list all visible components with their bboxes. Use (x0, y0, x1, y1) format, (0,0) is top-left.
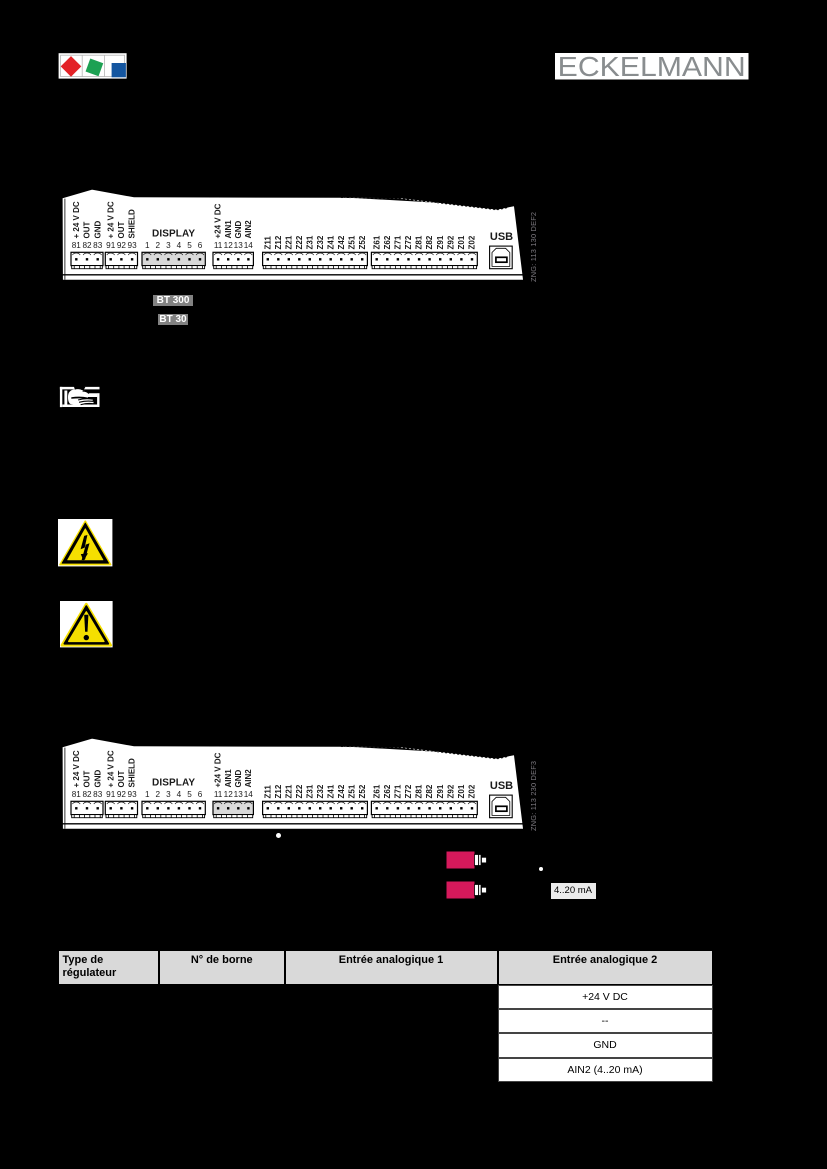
svg-text:Z82: Z82 (425, 235, 434, 249)
svg-text:3: 3 (166, 790, 171, 799)
svg-text:Z92: Z92 (446, 235, 455, 249)
svg-text:SHIELD: SHIELD (128, 209, 137, 239)
svg-text:5: 5 (187, 241, 192, 250)
svg-text:Z51: Z51 (347, 784, 356, 798)
svg-text:Z31: Z31 (305, 235, 314, 249)
svg-text:Z71: Z71 (394, 235, 403, 249)
svg-text:91: 91 (106, 241, 116, 250)
svg-text:Z32: Z32 (316, 784, 325, 798)
svg-text:+24 V DC: +24 V DC (214, 203, 223, 238)
svg-text:Z52: Z52 (358, 235, 367, 249)
svg-text:6: 6 (198, 790, 203, 799)
svg-text:11: 11 (214, 241, 223, 250)
svg-text:14: 14 (244, 241, 254, 250)
svg-text:+ 24 V DC: + 24 V DC (72, 201, 81, 238)
svg-text:Z92: Z92 (446, 784, 455, 798)
svg-text:Z81: Z81 (415, 235, 424, 249)
svg-text:OUT: OUT (117, 222, 126, 239)
svg-text:Z01: Z01 (457, 784, 466, 798)
svg-text:AIN2: AIN2 (244, 769, 253, 788)
svg-text:Z32: Z32 (316, 235, 325, 249)
svg-text:Z91: Z91 (436, 784, 445, 798)
svg-text:Z61: Z61 (372, 235, 381, 249)
svg-text:Z01: Z01 (457, 235, 466, 249)
svg-text:93: 93 (128, 241, 138, 250)
svg-text:Z91: Z91 (436, 235, 445, 249)
svg-text:AIN1: AIN1 (224, 769, 233, 788)
svg-text:2: 2 (156, 241, 161, 250)
svg-text:91: 91 (106, 790, 116, 799)
svg-text:Z12: Z12 (274, 235, 283, 249)
svg-text:14: 14 (244, 790, 254, 799)
svg-text:Z81: Z81 (415, 784, 424, 798)
svg-text:4: 4 (177, 241, 182, 250)
svg-text:81: 81 (72, 241, 82, 250)
svg-text:92: 92 (117, 790, 127, 799)
svg-text:GND: GND (234, 770, 243, 788)
svg-text:Z12: Z12 (274, 784, 283, 798)
svg-text:81: 81 (72, 790, 82, 799)
svg-text:4: 4 (177, 790, 182, 799)
svg-text:+24 V DC: +24 V DC (214, 752, 223, 787)
svg-text:DISPLAY: DISPLAY (152, 229, 195, 240)
svg-text:93: 93 (128, 790, 138, 799)
svg-text:82: 82 (82, 790, 92, 799)
svg-text:GND: GND (234, 221, 243, 239)
svg-text:SHIELD: SHIELD (128, 758, 137, 788)
svg-text:Z22: Z22 (295, 235, 304, 249)
svg-text:Z71: Z71 (394, 784, 403, 798)
svg-text:83: 83 (93, 790, 103, 799)
svg-text:ZNG: 113 230 DEF3: ZNG: 113 230 DEF3 (529, 761, 538, 831)
svg-text:ECKELMANN: ECKELMANN (558, 53, 746, 80)
svg-text:Z11: Z11 (263, 236, 272, 250)
svg-text:Z62: Z62 (383, 784, 392, 798)
svg-text:11: 11 (214, 790, 223, 799)
svg-text:Z51: Z51 (347, 235, 356, 249)
svg-text:1: 1 (145, 241, 150, 250)
svg-text:6: 6 (198, 241, 203, 250)
svg-text:Z62: Z62 (383, 235, 392, 249)
svg-text:GND: GND (93, 221, 102, 239)
svg-text:92: 92 (117, 241, 127, 250)
svg-text:82: 82 (82, 241, 92, 250)
svg-text:USB: USB (490, 780, 513, 792)
svg-text:Z61: Z61 (372, 784, 381, 798)
svg-text:Z42: Z42 (337, 784, 346, 798)
svg-text:OUT: OUT (117, 771, 126, 788)
svg-text:Z22: Z22 (295, 784, 304, 798)
svg-text:ZNG: 113 130 DEF2: ZNG: 113 130 DEF2 (529, 212, 538, 282)
svg-text:+ 24 V DC: + 24 V DC (106, 201, 115, 238)
svg-text:GND: GND (93, 770, 102, 788)
svg-text:3: 3 (166, 241, 171, 250)
svg-text:5: 5 (187, 790, 192, 799)
svg-text:Z41: Z41 (326, 235, 335, 249)
svg-text:USB: USB (490, 231, 513, 243)
svg-text:Z02: Z02 (468, 784, 477, 798)
svg-text:Z72: Z72 (404, 784, 413, 798)
svg-text:AIN1: AIN1 (224, 220, 233, 239)
svg-text:+ 24 V DC: + 24 V DC (106, 750, 115, 787)
svg-text:Z52: Z52 (358, 784, 367, 798)
svg-text:+ 24 V DC: + 24 V DC (72, 750, 81, 787)
svg-text:OUT: OUT (83, 771, 92, 788)
svg-text:Z11: Z11 (263, 785, 272, 799)
svg-text:Z21: Z21 (284, 784, 293, 798)
svg-text:Z41: Z41 (326, 784, 335, 798)
svg-text:DISPLAY: DISPLAY (152, 778, 195, 789)
svg-text:12: 12 (224, 241, 234, 250)
svg-text:Z42: Z42 (337, 235, 346, 249)
svg-text:Z02: Z02 (468, 235, 477, 249)
svg-text:Z31: Z31 (305, 784, 314, 798)
svg-text:AIN2: AIN2 (244, 220, 253, 239)
svg-text:12: 12 (224, 790, 234, 799)
svg-text:1: 1 (145, 790, 150, 799)
svg-text:OUT: OUT (83, 222, 92, 239)
svg-text:13: 13 (234, 790, 244, 799)
svg-text:Z21: Z21 (284, 235, 293, 249)
svg-text:Z82: Z82 (425, 784, 434, 798)
svg-text:Z72: Z72 (404, 235, 413, 249)
svg-text:2: 2 (156, 790, 161, 799)
svg-text:13: 13 (234, 241, 244, 250)
svg-text:83: 83 (93, 241, 103, 250)
